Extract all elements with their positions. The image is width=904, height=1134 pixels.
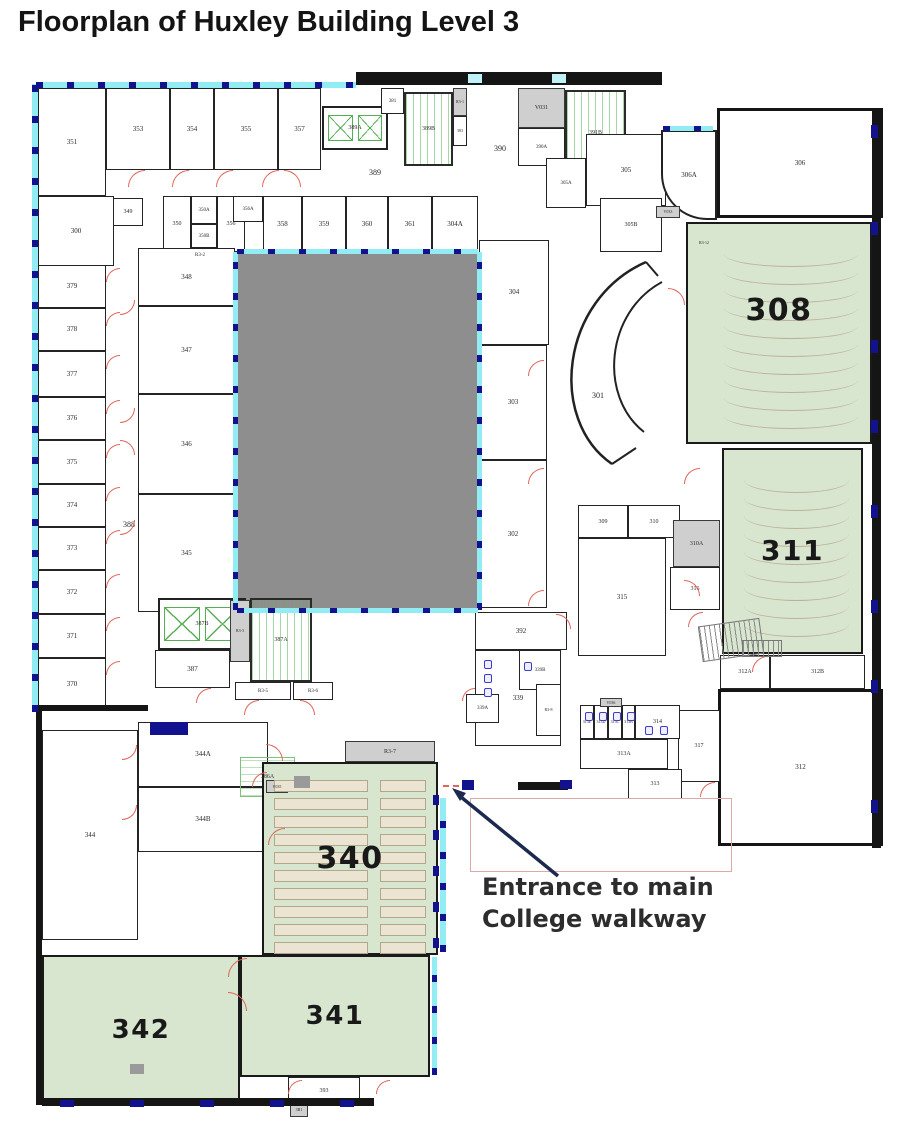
room-389: 389 — [355, 166, 395, 180]
room-392: 392 — [475, 612, 567, 650]
window-strip — [233, 252, 238, 610]
window-mullion — [871, 600, 878, 613]
room-314: 314 — [635, 705, 680, 739]
door-swing-icon — [106, 574, 120, 588]
room-label: R3-7 — [384, 749, 396, 755]
door-swing-icon — [106, 312, 120, 326]
room-label: 313A — [617, 751, 630, 757]
room-label: 360 — [362, 221, 373, 228]
toilet-fixture-icon — [660, 726, 668, 735]
wall-segment — [872, 108, 881, 848]
toilet-fixture-icon — [599, 712, 607, 721]
seat-bench — [274, 906, 368, 918]
room-label: 305 — [621, 167, 632, 174]
window-mullion — [270, 1100, 284, 1107]
room-389A: 389A — [322, 106, 388, 150]
room-label: 309 — [599, 519, 608, 525]
room-label: 312 — [795, 764, 806, 771]
room-342: 342 — [42, 955, 240, 1105]
room-label: R3-12 — [699, 241, 709, 245]
seat-row — [724, 378, 858, 393]
seat-bench — [380, 942, 426, 954]
door-swing-icon — [106, 268, 120, 282]
window-mullion — [871, 420, 878, 433]
room-label: 349 — [124, 209, 133, 215]
door-swing-icon — [120, 300, 135, 315]
seat-row — [724, 252, 858, 267]
room-label: 339B — [535, 668, 546, 673]
door-swing-icon — [120, 408, 135, 423]
window-mullion — [871, 800, 878, 813]
room-label: 3B1 — [296, 1108, 303, 1112]
door-swing-icon — [106, 400, 120, 414]
room-317: 317 — [678, 710, 720, 782]
room-313: 313 — [628, 769, 682, 799]
seat-bench — [274, 924, 368, 936]
door-swing-icon — [262, 170, 279, 187]
wall-segment — [356, 72, 662, 85]
toilet-fixture-icon — [484, 660, 492, 669]
room-313B: 313B — [622, 705, 635, 739]
window-mullion — [871, 340, 878, 353]
room-label: 356 — [227, 221, 236, 227]
entrance-opening — [443, 785, 459, 787]
window-mullion — [468, 74, 482, 83]
room-label: 306 — [795, 160, 806, 167]
room-348: 348 — [138, 248, 235, 306]
room-label: 387 — [187, 666, 198, 673]
gray-box — [130, 1064, 144, 1074]
room-381: 381 — [381, 88, 404, 114]
door-swing-icon — [106, 617, 120, 631]
seat-bench — [380, 924, 426, 936]
seat-row — [724, 360, 858, 375]
room-label: 306A — [681, 172, 697, 179]
room-label: 387A — [274, 637, 287, 643]
door-swing-icon — [668, 288, 685, 305]
room-label: 341 — [306, 1003, 365, 1029]
room-label: 361 — [405, 221, 416, 228]
toilet-fixture-icon — [585, 712, 593, 721]
window-mullion — [60, 1100, 74, 1107]
room-label: V031 — [535, 105, 548, 111]
room-label: 387B — [195, 621, 208, 627]
room-label: 346 — [181, 441, 192, 448]
door-swing-icon — [700, 782, 715, 797]
room-label: 339 — [513, 695, 524, 702]
floorplan: 351300353354355357349350350A350BR3-23563… — [0, 0, 904, 1134]
door-swing-icon — [120, 520, 135, 535]
room-R3-7: R3-7 — [345, 741, 435, 762]
room-301: 301 — [580, 388, 616, 404]
room-label: 392 — [516, 628, 527, 635]
room-label: R3-6 — [308, 689, 318, 694]
lift-shaft-icon — [164, 607, 200, 641]
room-label: 311 — [761, 537, 824, 565]
stair-hatch — [742, 640, 782, 657]
room-345: 345 — [138, 494, 235, 612]
room-label: 305A — [560, 181, 571, 186]
room-label: 312A — [738, 669, 751, 675]
window-strip — [237, 608, 478, 613]
seat-bench — [380, 852, 426, 864]
room-308: 308 — [686, 222, 872, 444]
room-313D: 313D — [594, 705, 608, 739]
toilet-fixture-icon — [524, 662, 532, 671]
room-359: 359 — [302, 196, 346, 252]
room-R3-5: R3-5 — [235, 682, 291, 700]
seat-bench — [380, 834, 426, 846]
room-355: 355 — [214, 88, 278, 170]
window-strip — [32, 84, 38, 712]
window-mullion — [871, 222, 878, 235]
seat-bench — [380, 870, 426, 882]
window-mullion — [871, 680, 878, 693]
room-label: 342 — [112, 1017, 171, 1043]
seat-bench — [274, 816, 368, 828]
room-V036: V036 — [600, 698, 622, 707]
room-label: 383 — [457, 129, 463, 133]
room-label: 301 — [592, 392, 604, 400]
room-label: 381 — [389, 99, 397, 104]
seat-row — [724, 414, 858, 429]
room-label: 376 — [67, 415, 78, 422]
room-label: V033 — [664, 210, 673, 214]
room-356A: 356A — [233, 196, 263, 222]
room-label: 305B — [624, 222, 637, 228]
room-label: 300 — [71, 228, 82, 235]
room-label: R3-3 — [236, 629, 244, 633]
window-strip — [432, 957, 437, 1075]
room-361: 361 — [388, 196, 432, 252]
room-label: 310A — [690, 541, 703, 547]
door-swing-icon — [556, 614, 571, 629]
window-mullion — [150, 722, 188, 735]
seat-row — [744, 586, 849, 601]
floorplan-page: Floorplan of Huxley Building Level 3 351… — [0, 0, 904, 1134]
seat-bench — [380, 906, 426, 918]
room-347: 347 — [138, 306, 235, 394]
seat-bench — [274, 798, 368, 810]
room-389B: 389B — [404, 92, 453, 166]
room-379: 379 — [38, 265, 106, 308]
seat-row — [744, 478, 849, 493]
room-340: 340 — [262, 762, 438, 955]
door-swing-icon — [106, 661, 120, 675]
window-mullion — [552, 74, 566, 83]
annotation-line1: Entrance to main — [482, 872, 762, 904]
room-351: 351 — [38, 88, 106, 196]
room-label: 344 — [85, 832, 96, 839]
window-mullion — [130, 1100, 144, 1107]
door-swing-icon — [244, 700, 259, 715]
window-mullion — [433, 795, 439, 805]
room-label: 358 — [277, 221, 288, 228]
room-387: 387 — [155, 650, 230, 688]
room-312B: 312B — [770, 655, 865, 689]
room-V031: V031 — [518, 88, 565, 128]
room-304A: 304A — [432, 196, 478, 252]
window-mullion — [433, 902, 439, 912]
door-swing-icon — [688, 612, 703, 627]
room-label: 339A — [477, 706, 488, 711]
room-313A: 313A — [580, 739, 668, 769]
room-label: 389A — [348, 125, 361, 131]
toilet-fixture-icon — [613, 712, 621, 721]
room-label: 303 — [508, 399, 519, 406]
room-R3-1: R3-1 — [453, 88, 467, 116]
window-strip — [440, 798, 446, 952]
room-306: 306 — [717, 108, 883, 218]
room-346: 346 — [138, 394, 235, 494]
room-label: 308 — [745, 296, 812, 326]
room-label: 372 — [67, 589, 78, 596]
walkway-outline — [470, 798, 732, 872]
door-swing-icon — [106, 487, 120, 501]
room-349: 349 — [113, 198, 143, 226]
room-label: 304A — [447, 221, 463, 228]
window-mullion — [433, 830, 439, 840]
room-label: 340 — [316, 844, 383, 874]
room-label: R3-8 — [545, 708, 553, 712]
room-label: V036 — [607, 701, 616, 705]
room-label: R3-2 — [195, 253, 205, 258]
window-mullion — [340, 1100, 354, 1107]
room-360: 360 — [346, 196, 388, 252]
room-label: 356A — [242, 207, 253, 212]
room-305B: 305B — [600, 198, 662, 252]
room-label: 350B — [199, 234, 210, 239]
toilet-fixture-icon — [645, 726, 653, 735]
room-370: 370 — [38, 658, 106, 710]
room-label: 302 — [508, 531, 519, 538]
room-305A: 305A — [546, 158, 586, 208]
room-label: 350A — [198, 208, 209, 213]
room-label: 370 — [67, 681, 78, 688]
room-label: R3-1 — [456, 100, 464, 104]
room-label: 378 — [67, 326, 78, 333]
toilet-fixture-icon — [484, 674, 492, 683]
room-label: 312B — [811, 669, 824, 675]
window-mullion — [462, 780, 474, 790]
room-label: 375 — [67, 459, 78, 466]
room-label: 345 — [181, 550, 192, 557]
door-swing-icon — [106, 444, 120, 458]
door-swing-icon — [300, 700, 315, 715]
room-label: 374 — [67, 502, 78, 509]
window-mullion — [433, 866, 439, 876]
room-label: 359 — [319, 221, 330, 228]
seat-bench — [380, 780, 426, 792]
room-label: 315 — [617, 594, 628, 601]
room-304: 304 — [479, 240, 549, 345]
room-label: 344A — [195, 751, 211, 758]
room-label: 313 — [651, 781, 660, 787]
entrance-annotation: Entrance to main College walkway — [482, 872, 762, 935]
room-label: 355 — [241, 126, 252, 133]
room-V033: V033 — [656, 206, 680, 218]
room-label: 390A — [536, 145, 547, 150]
room-350B: 350B — [191, 224, 217, 248]
room-label: 377 — [67, 371, 78, 378]
room-344: 344 — [42, 730, 138, 940]
room-label: 348 — [181, 274, 192, 281]
room-312: 312 — [718, 689, 883, 846]
door-swing-icon — [216, 170, 233, 187]
door-swing-icon — [172, 170, 189, 187]
room-350A: 350A — [191, 196, 217, 224]
seat-bench — [274, 888, 368, 900]
room-305: 305 — [586, 134, 666, 206]
toilet-fixture-icon — [484, 688, 492, 697]
room-300: 300 — [38, 196, 114, 266]
room-309: 309 — [578, 505, 628, 538]
gray-box — [294, 776, 310, 788]
room-372: 372 — [38, 570, 106, 614]
room-label: 389B — [422, 126, 435, 132]
room-371: 371 — [38, 614, 106, 658]
window-mullion — [871, 125, 878, 138]
room-label: R3-5 — [258, 689, 268, 694]
room-315: 315 — [578, 538, 666, 656]
room-383: 383 — [453, 116, 467, 146]
room-R3-8: R3-8 — [536, 684, 561, 736]
door-swing-icon — [376, 1080, 390, 1094]
room-376: 376 — [38, 397, 106, 440]
room-358: 358 — [263, 196, 302, 252]
door-swing-icon — [120, 440, 135, 455]
toilet-fixture-icon — [627, 712, 635, 721]
wall-segment — [38, 705, 148, 711]
seat-row — [744, 496, 849, 511]
room-310A: 310A — [673, 520, 720, 567]
wall-segment — [36, 710, 42, 1105]
door-swing-icon — [684, 468, 700, 484]
seat-row — [744, 514, 849, 529]
room-label: 393 — [320, 1088, 329, 1094]
room-354: 354 — [170, 88, 214, 170]
room-label: 354 — [187, 126, 198, 133]
room-R3-6: R3-6 — [293, 682, 333, 700]
room-313E: 313E — [580, 705, 594, 739]
room-label: 379 — [67, 283, 78, 290]
room-378: 378 — [38, 308, 106, 351]
room-label: 317 — [695, 743, 704, 749]
room-313C: 313C — [608, 705, 622, 739]
seat-bench — [380, 816, 426, 828]
room-label: 373 — [67, 545, 78, 552]
central-void — [237, 252, 478, 610]
room-341: 341 — [240, 955, 430, 1077]
room-label: 344B — [195, 816, 210, 823]
window-strip — [36, 82, 356, 88]
door-swing-icon — [106, 530, 120, 544]
room-label: 390 — [494, 145, 506, 153]
room-353: 353 — [106, 88, 170, 170]
room-390: 390 — [480, 142, 520, 156]
room-label: 314 — [653, 719, 662, 725]
window-mullion — [433, 938, 439, 948]
annotation-line2: College walkway — [482, 904, 762, 936]
room-label: 389 — [369, 169, 381, 177]
window-strip — [237, 249, 478, 254]
seat-row — [724, 270, 858, 285]
room-label: 304 — [509, 289, 520, 296]
room-375: 375 — [38, 440, 106, 484]
room-label: 350 — [173, 221, 182, 227]
door-swing-icon — [462, 688, 475, 701]
seat-row — [724, 396, 858, 411]
door-swing-icon — [266, 744, 283, 761]
room-350: 350 — [163, 196, 191, 252]
seat-row — [744, 568, 849, 583]
seat-bench — [274, 780, 368, 792]
seat-bench — [274, 942, 368, 954]
room-377: 377 — [38, 351, 106, 397]
window-mullion — [560, 780, 572, 789]
room-label: 357 — [294, 126, 305, 133]
room-374: 374 — [38, 484, 106, 527]
room-label: 391B — [589, 130, 602, 136]
room-label: V035 — [273, 785, 282, 789]
door-swing-icon — [284, 170, 301, 187]
door-swing-icon — [128, 170, 145, 187]
room-label: 351 — [67, 139, 78, 146]
door-swing-icon — [196, 688, 211, 703]
window-strip — [663, 126, 713, 131]
door-swing-icon — [106, 355, 120, 369]
window-mullion — [871, 505, 878, 518]
seat-row — [744, 604, 849, 619]
seat-bench — [380, 798, 426, 810]
room-373: 373 — [38, 527, 106, 570]
room-label: 371 — [67, 633, 78, 640]
room-label: 353 — [133, 126, 144, 133]
window-mullion — [200, 1100, 214, 1107]
room-label: 347 — [181, 347, 192, 354]
seat-row — [724, 342, 858, 357]
room-357: 357 — [278, 88, 321, 170]
room-label: 310 — [650, 519, 659, 525]
window-strip — [477, 252, 482, 610]
seat-bench — [380, 888, 426, 900]
